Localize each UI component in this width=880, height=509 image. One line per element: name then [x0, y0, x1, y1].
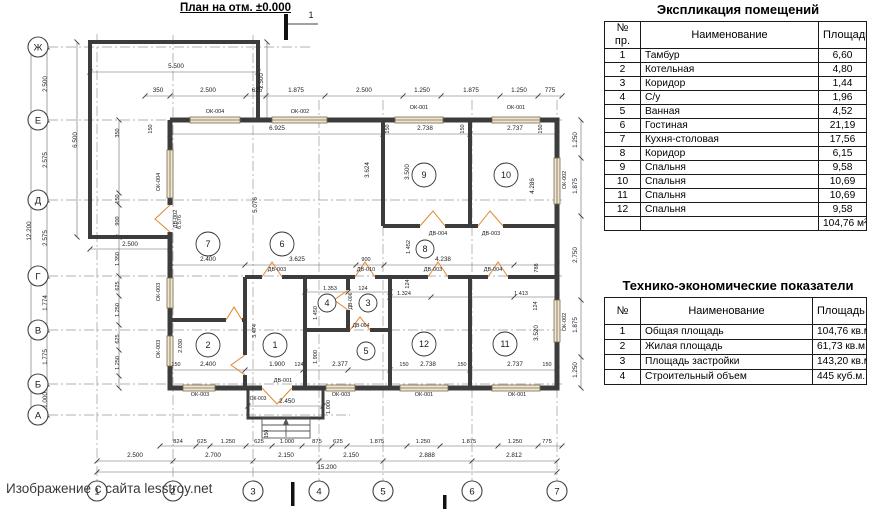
axis-letter-label: Ж — [34, 43, 43, 54]
table-cell: 4 — [605, 370, 641, 385]
dim-label: 1.250 — [115, 356, 121, 370]
dim-label: 2.575 — [42, 152, 49, 168]
dim-label: 1.900 — [313, 350, 319, 364]
table-cell: 2 — [605, 63, 641, 77]
table-cell: 445 куб.м. — [813, 370, 867, 385]
dim-label: 150 — [538, 124, 544, 133]
dim-label: 1.875 — [572, 317, 579, 333]
dim-label: 5.076 — [252, 197, 259, 213]
dim-label: 3.625 — [289, 256, 305, 263]
dim-label: ДВ-004 — [484, 267, 502, 273]
table-row: 10Спальня10,69 — [605, 175, 867, 189]
axis-number-label: 5 — [380, 487, 385, 498]
table-cell: 7 — [605, 133, 641, 147]
table-cell: 5 — [605, 105, 641, 119]
window-ok004-top — [190, 117, 240, 123]
room-number-label: 2 — [205, 340, 210, 350]
dim-label: 625 — [115, 281, 121, 290]
window-ok001-top2 — [492, 117, 540, 123]
room-number-label: 9 — [421, 170, 426, 180]
dim-label: 625 — [254, 439, 264, 445]
dim-label: 1.413 — [514, 291, 528, 297]
dim-label: 150 — [457, 362, 466, 368]
table-row: 12Спальня9,58 — [605, 203, 867, 217]
dim-label: 2.888 — [419, 452, 435, 459]
table-cell: 1,96 — [819, 91, 867, 105]
dim-label: 150 — [385, 124, 391, 133]
window-ok003-bottom2 — [326, 385, 355, 391]
table-cell: Кухня-столовая — [641, 133, 819, 147]
dim-label: ОК-003 — [250, 396, 267, 402]
col-header-name: Наименование — [641, 298, 813, 325]
dim-label: 124 — [533, 301, 539, 310]
total-row: 104,76 м² — [605, 217, 867, 231]
dim-label: 1.875 — [370, 439, 385, 445]
table-row: 3Площадь застройки143,20 кв.м — [605, 355, 867, 370]
dim-label: ОК-002 — [291, 109, 310, 115]
dim-label: 150 — [115, 194, 121, 203]
room-number-label: 3 — [365, 298, 370, 308]
table-cell: Общая площадь — [641, 325, 813, 340]
table-row: 9Спальня9,58 — [605, 161, 867, 175]
dim-label: 625 — [197, 439, 207, 445]
table-cell: 10 — [605, 175, 641, 189]
window-ok002-right2 — [554, 300, 560, 342]
dim-label: 2.500 — [122, 241, 138, 248]
dim-label: ДВ-004 — [429, 231, 447, 237]
dim-label: ДВ-003 — [482, 231, 500, 237]
dim-label: 3.500 — [404, 164, 411, 180]
table-cell: Спальня — [641, 203, 819, 217]
tech-indicators-table: № Наименование Площадь 1Общая площадь104… — [604, 297, 867, 385]
table-row: 4С/у1,96 — [605, 91, 867, 105]
room-number-label: 7 — [205, 239, 210, 249]
dim-label: 1.250 — [572, 362, 579, 378]
dim-label: ОК-001 — [415, 392, 434, 398]
dim-label: 350 — [115, 128, 121, 137]
table-cell: Площадь застройки — [641, 355, 813, 370]
table-cell: 10,69 — [819, 189, 867, 203]
dim-label: 775 — [542, 439, 552, 445]
window-ok004-left — [167, 150, 173, 198]
table-cell: 4 — [605, 91, 641, 105]
table-cell: 61,73 кв.м. — [813, 340, 867, 355]
room-number-label: 1 — [272, 340, 277, 350]
table-cell: Спальня — [641, 189, 819, 203]
col-header-num: № пр. — [605, 22, 641, 49]
dim-label: 1.000 — [280, 439, 295, 445]
dim-label: 824 — [173, 439, 183, 445]
dim-label: 1.000 — [326, 400, 332, 414]
axis-number-label: 4 — [316, 487, 321, 498]
dim-label: 875 — [312, 439, 322, 445]
table-cell: Спальня — [641, 161, 819, 175]
explication-title: Экспликация помещений — [604, 2, 872, 17]
table-cell: 9,58 — [819, 203, 867, 217]
table-cell: Спальня — [641, 175, 819, 189]
dim-label: ДВ-003 — [424, 267, 442, 273]
dim-label: 124 — [405, 279, 411, 288]
room-number-label: 10 — [501, 170, 511, 180]
dim-label: 775 — [545, 87, 556, 94]
table-cell: 104,76 кв.м. — [813, 325, 867, 340]
table-row: 3Коридор1,44 — [605, 77, 867, 91]
table-row: 11Спальня10,69 — [605, 189, 867, 203]
table-cell: 8 — [605, 147, 641, 161]
explication-panel: Экспликация помещений № пр. Наименование… — [604, 2, 872, 231]
watermark-text: Изображение с сайта lesstroy.net — [6, 481, 212, 496]
dim-label: 1.000 — [42, 392, 49, 408]
dim-label: 2.450 — [279, 398, 295, 405]
room-number-label: 11 — [500, 339, 509, 349]
dim-label: 6.925 — [269, 125, 285, 132]
dim-label: 1.250 — [508, 439, 523, 445]
walls — [90, 42, 557, 418]
dim-label: 2.030 — [178, 339, 184, 353]
table-cell: Ванная — [641, 105, 819, 119]
dim-label: 1.450 — [313, 306, 319, 320]
tech-title: Технико-экономические показатели — [604, 278, 872, 293]
dim-label: 1.250 — [416, 439, 431, 445]
dim-label: 3.474 — [252, 324, 258, 338]
axis-number-label: 6 — [469, 487, 474, 498]
window-ok003-bottom — [183, 385, 215, 391]
dim-label: 1.250 — [414, 87, 430, 94]
dim-label: 2.150 — [343, 452, 359, 459]
dim-label: ОК-003 — [156, 340, 162, 359]
dim-label: 2.575 — [42, 230, 49, 246]
table-cell: 9 — [605, 161, 641, 175]
table-cell: 21,19 — [819, 119, 867, 133]
table-cell — [641, 217, 819, 231]
table-header-row: № пр. Наименование Площадь — [605, 22, 867, 49]
dim-label: 900 — [115, 216, 121, 225]
axis-letter-label: Б — [35, 380, 41, 391]
table-cell: Тамбур — [641, 49, 819, 63]
table-row: 7Кухня-столовая17,56 — [605, 133, 867, 147]
dim-label: 1.875 — [462, 439, 477, 445]
table-row: 2Котельная4,80 — [605, 63, 867, 77]
dim-label: 15.200 — [317, 464, 337, 471]
axis-letter-label: Г — [35, 272, 40, 283]
room-number-label: 12 — [419, 339, 429, 349]
dim-label: 1.775 — [42, 349, 49, 365]
dim-label: 2.700 — [205, 452, 221, 459]
table-cell: 10,69 — [819, 175, 867, 189]
table-cell: 17,56 — [819, 133, 867, 147]
dim-label: 788 — [534, 263, 540, 272]
table-cell: 4,80 — [819, 63, 867, 77]
table-row: 4Строительный объем445 куб.м. — [605, 370, 867, 385]
dim-label: 2.150 — [278, 452, 294, 459]
dim-label: 2.738 — [420, 361, 436, 368]
dim-label: 2.377 — [332, 361, 348, 368]
dim-label: 2.737 — [507, 361, 523, 368]
table-row: 6Гостиная21,19 — [605, 119, 867, 133]
dim-label: 2.500 — [356, 87, 372, 94]
table-cell: 3 — [605, 77, 641, 91]
dim-label: 124 — [358, 286, 367, 292]
dim-label: ОК-001 — [508, 392, 527, 398]
screenshot-root: План на отм. ±0.000 — [0, 0, 880, 509]
room-number-label: 6 — [279, 239, 284, 249]
dim-label: ДВ-010 — [357, 267, 375, 273]
table-cell: Котельная — [641, 63, 819, 77]
window-ok001-bottom2 — [492, 385, 540, 391]
dim-label: 1.452 — [406, 240, 412, 254]
dim-label: 1.875 — [463, 87, 479, 94]
axis-number-label: 3 — [250, 487, 255, 498]
table-cell — [605, 217, 641, 231]
dim-label: 2.738 — [417, 125, 433, 132]
dim-label: 5.500 — [168, 63, 184, 70]
dim-label: 1.250 — [572, 132, 579, 148]
dim-label: 2.812 — [506, 452, 522, 459]
col-header-num: № — [605, 298, 641, 325]
dim-label: 4.238 — [435, 256, 451, 263]
dim-label: 1 — [308, 10, 313, 20]
dim-label: ОК-004 — [206, 109, 225, 115]
table-cell: 1,44 — [819, 77, 867, 91]
explication-table: № пр. Наименование Площадь 1Тамбур6,602К… — [604, 21, 867, 231]
dim-label: ОК-001 — [410, 105, 429, 111]
dim-label: 1.250 — [511, 87, 527, 94]
table-row: 8Коридор6,15 — [605, 147, 867, 161]
window-ok002-top — [272, 117, 327, 123]
col-header-name: Наименование — [641, 22, 819, 49]
dim-label: ОК-003 — [332, 392, 351, 398]
table-cell: 1 — [605, 49, 641, 63]
col-header-area: Площадь — [813, 298, 867, 325]
dim-label: ОК-002 — [562, 313, 568, 332]
window-ok003-left — [167, 278, 173, 308]
room-number-label: 4 — [324, 298, 329, 308]
axis-letter-label: Д — [35, 196, 42, 207]
dim-label: 1.353 — [323, 286, 337, 292]
table-cell: 12 — [605, 203, 641, 217]
dimension-and-tag-labels: 5.5003502.5006251.8752.5001.2501.8751.25… — [26, 10, 579, 471]
dim-label: ОК-004 — [156, 173, 162, 192]
dim-label: 625 — [115, 334, 121, 343]
dim-label: 350 — [153, 87, 164, 94]
dim-label: 1.900 — [269, 361, 285, 368]
dim-label: 900 — [361, 257, 370, 263]
table-cell: Коридор — [641, 147, 819, 161]
dim-label: 150 — [399, 362, 408, 368]
floor-plan-drawing: ЖЕДГВБА1234567 123456789101112 5.5003502… — [0, 0, 600, 509]
dim-label: 2.737 — [507, 125, 523, 132]
dim-label: 2.750 — [572, 247, 579, 263]
room-number-label: 8 — [422, 244, 427, 254]
dim-label: 2.400 — [200, 361, 216, 368]
dim-label: 2.500 — [200, 87, 216, 94]
dim-label: 3.624 — [364, 162, 371, 178]
dim-label: ОК-002 — [562, 171, 568, 190]
table-cell: Гостиная — [641, 119, 819, 133]
dim-label: 1.875 — [288, 87, 304, 94]
dim-label: 12.200 — [26, 221, 33, 241]
table-cell: 6 — [605, 119, 641, 133]
axis-grid-lines — [48, 34, 565, 481]
dim-label: 1.350 — [115, 252, 121, 266]
dim-label: ОК-001 — [507, 105, 526, 111]
dim-label: ДВ-004 — [353, 323, 370, 329]
table-row: 5Ванная4,52 — [605, 105, 867, 119]
dim-label: ДВ-003 — [268, 267, 286, 273]
col-header-area: Площадь — [819, 22, 867, 49]
dim-label: 1.875 — [572, 178, 579, 194]
table-row: 1Общая площадь104,76 кв.м. — [605, 325, 867, 340]
table-cell: Жилая площадь — [641, 340, 813, 355]
table-cell: Коридор — [641, 77, 819, 91]
dim-label: 6.500 — [72, 132, 79, 148]
dim-label: ОК-003 — [191, 392, 210, 398]
dim-label: 1.774 — [42, 295, 49, 311]
table-cell: 11 — [605, 189, 641, 203]
axis-letter-label: Е — [35, 116, 41, 127]
table-header-row: № Наименование Площадь — [605, 298, 867, 325]
dim-label: 2.500 — [127, 452, 143, 459]
dimension-lines — [29, 40, 584, 475]
table-cell: 143,20 кв.м — [813, 355, 867, 370]
dim-label: 124 — [294, 362, 303, 368]
tech-indicators-panel: Технико-экономические показатели № Наиме… — [604, 278, 872, 385]
room-number-label: 5 — [363, 346, 368, 356]
dim-label: 150 — [171, 362, 180, 368]
total-area-cell: 104,76 м² — [819, 217, 867, 231]
dim-label: 625 — [333, 439, 343, 445]
table-row: 1Тамбур6,60 — [605, 49, 867, 63]
table-cell: 1 — [605, 325, 641, 340]
dim-label: ДВ-001 — [274, 378, 292, 384]
dim-label: 150 — [148, 124, 154, 133]
table-row: 2Жилая площадь61,73 кв.м. — [605, 340, 867, 355]
table-cell: С/у — [641, 91, 819, 105]
table-cell: 6,60 — [819, 49, 867, 63]
window-ok001-bottom — [400, 385, 448, 391]
window-ok002-right — [554, 158, 560, 204]
table-cell: 9,58 — [819, 161, 867, 175]
dim-label: 2.400 — [200, 256, 216, 263]
dim-label: 2.500 — [258, 73, 265, 89]
table-cell: 3 — [605, 355, 641, 370]
dim-label: ОК-003 — [156, 283, 162, 302]
axis-letter-label: В — [35, 326, 41, 337]
axis-number-label: 7 — [554, 487, 559, 498]
window-ok001-top — [395, 117, 443, 123]
dim-label: 2.500 — [42, 76, 49, 92]
table-cell: 6,15 — [819, 147, 867, 161]
dim-label: 150 — [264, 430, 270, 439]
dim-label: 4.286 — [529, 178, 536, 194]
dim-label: 1.250 — [221, 439, 236, 445]
dim-label: 1.324 — [397, 291, 411, 297]
dim-label: 150 — [542, 362, 551, 368]
table-cell: Строительный объем — [641, 370, 813, 385]
axis-letter-label: А — [35, 411, 42, 422]
dim-label: 150 — [460, 124, 466, 133]
table-cell: 4,52 — [819, 105, 867, 119]
table-cell: 2 — [605, 340, 641, 355]
dim-label: ДВ-006 — [348, 292, 354, 309]
dim-label: 6.576 — [177, 215, 183, 229]
dim-label: 3.520 — [533, 325, 540, 341]
dim-label: 1.250 — [115, 303, 121, 317]
